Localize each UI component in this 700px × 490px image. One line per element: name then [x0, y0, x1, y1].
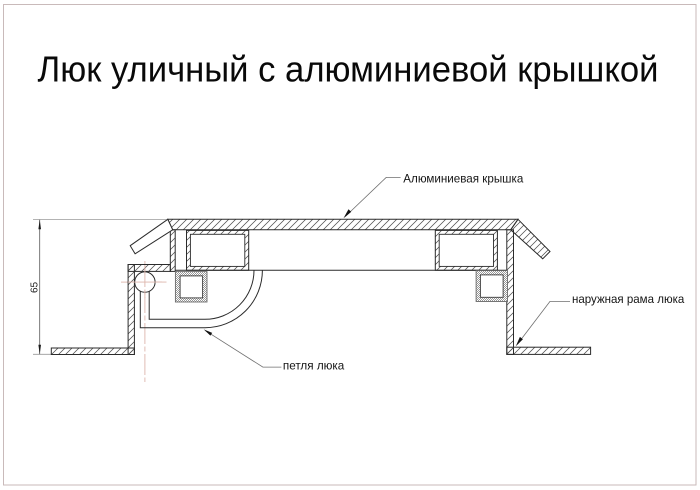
svg-text:петля люка: петля люка [283, 359, 345, 373]
svg-text:Алюминиевая крышка: Алюминиевая крышка [403, 172, 523, 186]
svg-text:наружная рама люка: наружная рама люка [572, 292, 685, 306]
svg-text:65: 65 [30, 281, 41, 293]
svg-text:Люк уличный с алюминиевой крыш: Люк уличный с алюминиевой крышкой [38, 48, 659, 89]
